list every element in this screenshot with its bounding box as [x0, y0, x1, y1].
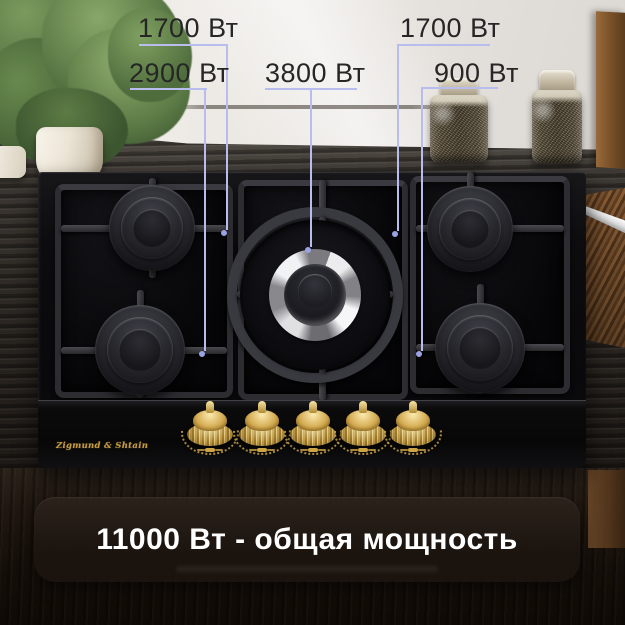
knob-dome [245, 410, 279, 431]
callout-line [310, 88, 312, 247]
knob-finial [206, 401, 214, 413]
knob-finial [258, 401, 266, 413]
knob-emblem [257, 448, 267, 452]
callout-label: 900 Вт [434, 60, 519, 87]
knob-finial [359, 401, 367, 413]
knob-emblem [205, 448, 215, 452]
callout-ring [416, 351, 422, 357]
knob-dome [346, 410, 380, 431]
knob-dome [296, 410, 330, 431]
callout-line [421, 87, 423, 351]
knob-finial [409, 401, 417, 413]
burner-bottom-right [435, 303, 525, 393]
total-power-banner: 11000 Вт - общая мощность [34, 497, 580, 582]
jar-body [532, 90, 582, 163]
knob-emblem [308, 448, 318, 452]
product-screenshot: Zigmund & Shtain [0, 0, 625, 625]
knob-emblem [358, 448, 368, 452]
callout-ring [221, 230, 227, 236]
control-knob-3 [287, 401, 339, 453]
knob-emblem [408, 448, 418, 452]
burner-top-right [427, 186, 513, 272]
callout-label: 3800 Вт [265, 60, 366, 87]
brand-text: Zigmund & Shtain [56, 441, 166, 453]
burner-core [119, 329, 161, 371]
callout-label: 1700 Вт [138, 15, 239, 42]
burner-core [451, 210, 489, 248]
knob-finial [309, 401, 317, 413]
burner-core [133, 209, 171, 247]
callout-ring [305, 247, 311, 253]
callout-ring [199, 351, 205, 357]
knob-dome [193, 410, 227, 431]
control-knob-5 [387, 401, 439, 453]
callout-underline [139, 44, 228, 46]
callout-ring [392, 231, 398, 237]
callout-underline [130, 88, 207, 90]
callout-label: 1700 Вт [400, 15, 501, 42]
callout-line [397, 44, 399, 231]
jar-body [430, 95, 488, 162]
callout-underline [397, 44, 490, 46]
wok-cap-top [298, 274, 332, 308]
burner-top-left [109, 185, 195, 271]
callout-label: 2900 Вт [129, 60, 230, 87]
cabinet-wood-trim [588, 470, 625, 548]
knob-dome [396, 410, 430, 431]
burner-core [459, 327, 501, 369]
banner-reflection [176, 566, 438, 572]
standing-wood-board [596, 11, 625, 169]
control-knob-2 [236, 401, 288, 453]
total-power-text: 11000 Вт - общая мощность [96, 523, 518, 557]
control-knob-4 [337, 401, 389, 453]
callout-underline [422, 87, 498, 89]
burner-bottom-left [95, 305, 185, 395]
callout-line [204, 88, 206, 351]
gas-hob: Zigmund & Shtain [38, 172, 586, 468]
second-pot [0, 146, 26, 178]
control-knob-1 [184, 401, 236, 453]
